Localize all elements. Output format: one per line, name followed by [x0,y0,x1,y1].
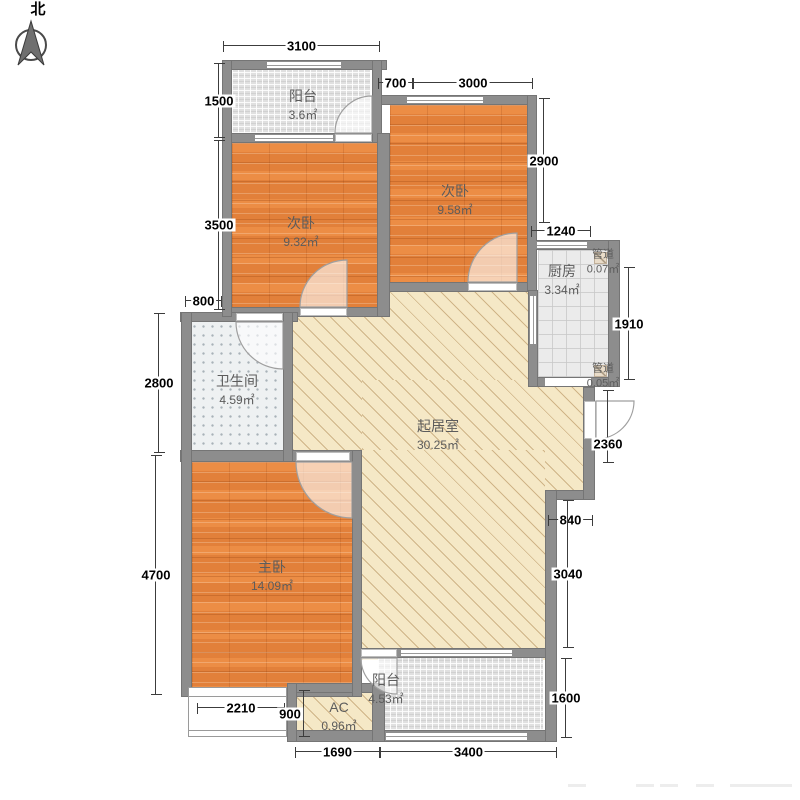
dim-kitchen-height: 1910 [628,267,629,380]
room-name: AC [321,698,356,718]
dim-kitchen-width: 1240 [531,230,591,231]
room-area: 14.09㎡ [251,577,293,594]
room-name: 主卧 [251,558,293,578]
watermark [660,784,678,787]
floor-plan: 阳台 3.6㎡ 次卧 9.32㎡ 次卧 9.58㎡ 厨房 3.34㎡ 管道 0.… [0,0,800,800]
door-leaf-balcony-bottom [361,649,397,657]
dim-bay-window-width: 2210 [197,707,285,708]
dim-label: 900 [277,707,303,720]
dim-label: 3100 [285,40,318,53]
north-compass: 北 [8,2,68,78]
wall [377,133,390,317]
dim-label: 1600 [550,692,583,705]
window [406,96,484,104]
north-label: 北 [8,2,68,17]
room-area: 0.07㎡ [587,263,619,278]
dim-bedroom-left-height: 3500 [218,140,219,310]
dim-label: 700 [383,77,409,90]
room-name: 阳台 [289,87,318,107]
door-leaf-entrance [584,401,596,439]
watermark [636,784,654,787]
door-leaf-master [296,452,350,461]
room-label-master: 主卧 14.09㎡ [251,558,293,594]
dim-label: 1240 [545,225,578,238]
room-area: 4.59㎡ [216,391,258,408]
room-area: 3.34㎡ [544,281,579,298]
room-area: 0.96㎡ [321,717,356,734]
room-label-duct-top: 管道 0.07㎡ [587,248,619,279]
window [529,295,537,345]
room-name: 卫生间 [216,372,258,392]
north-arrow-icon [8,17,68,73]
dim-label: 2360 [592,438,625,451]
room-label-balcony-bottom: 阳台 4.53㎡ [368,671,403,707]
dim-bay-window-depth: 900 [303,690,304,737]
door-leaf-balcony-top [335,134,372,142]
dim-label: 800 [191,295,217,308]
living-room-floor-south [362,450,545,660]
dim-label: 3000 [457,77,490,90]
room-label-balcony-top: 阳台 3.6㎡ [289,87,318,123]
dim-balcony-bottom-width: 3400 [380,751,557,752]
window [400,649,513,657]
dim-bedroom-right-width: 3000 [413,82,533,83]
wall [352,450,362,697]
door-leaf-bathroom [236,313,283,321]
room-area: 9.58㎡ [437,201,472,218]
room-name: 次卧 [437,182,472,202]
window [536,241,588,249]
dim-label: 2900 [528,154,561,167]
dim-label: 1500 [203,94,236,107]
dim-balcony-bottom-height: 1600 [565,658,566,738]
kitchen-opening [545,378,591,386]
dim-step-width: 840 [548,519,593,520]
room-label-bedroom-left: 次卧 9.32㎡ [283,214,318,250]
door-arc-entrance [596,401,634,439]
room-label-duct-bottom: 管道 0.05㎡ [587,362,619,393]
dim-bathroom-height: 2800 [158,313,159,453]
watermark [696,784,714,787]
dim-label: 2800 [143,377,176,390]
room-label-living: 起居室 30.25㎡ [417,417,459,453]
dim-top-offset: 700 [378,82,413,83]
door-leaf-bedroom-right [468,283,517,291]
bay-window-opening [196,688,283,696]
dim-master-height: 4700 [155,455,156,695]
dim-label: 1690 [321,746,354,759]
wall [527,95,537,292]
wall [181,312,192,697]
dim-entry-wall: 2360 [607,390,608,463]
dim-balcony-top-height: 1500 [218,63,219,138]
dim-label: 3040 [552,568,585,581]
room-area: 3.6㎡ [289,106,318,123]
room-area: 30.25㎡ [417,436,459,453]
room-name: 厨房 [544,262,579,282]
room-name: 阳台 [368,671,403,691]
dim-label: 3500 [203,219,236,232]
dim-balcony-top-width: 3100 [223,45,380,46]
door-leaf-bedroom-left [300,308,347,316]
dim-bath-offset: 800 [185,300,222,301]
watermark [730,784,792,787]
room-name: 管道 [587,248,619,263]
window [385,732,528,741]
room-area: 9.32㎡ [283,233,318,250]
room-name: 次卧 [283,214,318,234]
room-label-kitchen: 厨房 3.34㎡ [544,262,579,298]
window [266,61,342,69]
dim-ac-span: 1690 [295,751,380,752]
room-name: 起居室 [417,417,459,437]
dim-label: 1910 [613,317,646,330]
room-name: 管道 [587,362,619,377]
dim-label: 2210 [225,702,258,715]
dim-living-east: 3040 [567,500,568,648]
dim-label: 3400 [452,746,485,759]
dim-bedroom-right-height: 2900 [543,98,544,223]
room-label-ac: AC 0.96㎡ [321,698,356,734]
watermark [568,784,586,787]
wall [372,60,382,143]
window [254,134,334,142]
dim-label: 840 [558,514,584,527]
room-label-bathroom: 卫生间 4.59㎡ [216,372,258,408]
wall [283,312,293,462]
dim-label: 4700 [140,569,173,582]
room-label-bedroom-right: 次卧 9.58㎡ [437,182,472,218]
room-area: 4.53㎡ [368,690,403,707]
